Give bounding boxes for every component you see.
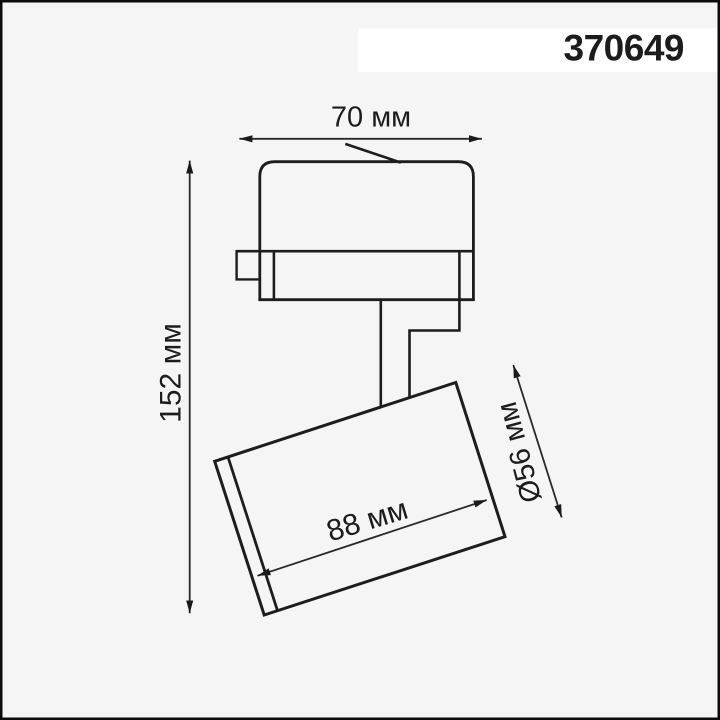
svg-text:70 мм: 70 мм xyxy=(331,101,411,133)
svg-text:152 мм: 152 мм xyxy=(155,323,188,423)
svg-text:370649: 370649 xyxy=(564,27,684,68)
